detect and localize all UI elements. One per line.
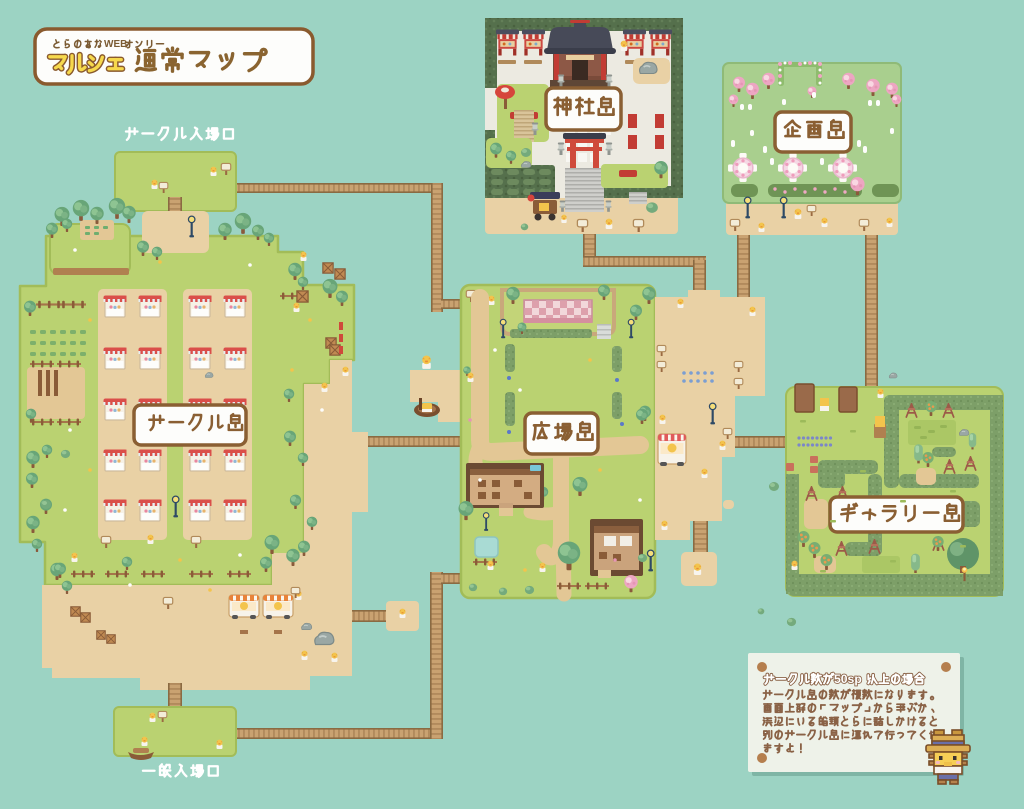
svg-text:50sp: 50sp <box>834 672 862 686</box>
svg-text:WEB: WEB <box>104 39 127 50</box>
